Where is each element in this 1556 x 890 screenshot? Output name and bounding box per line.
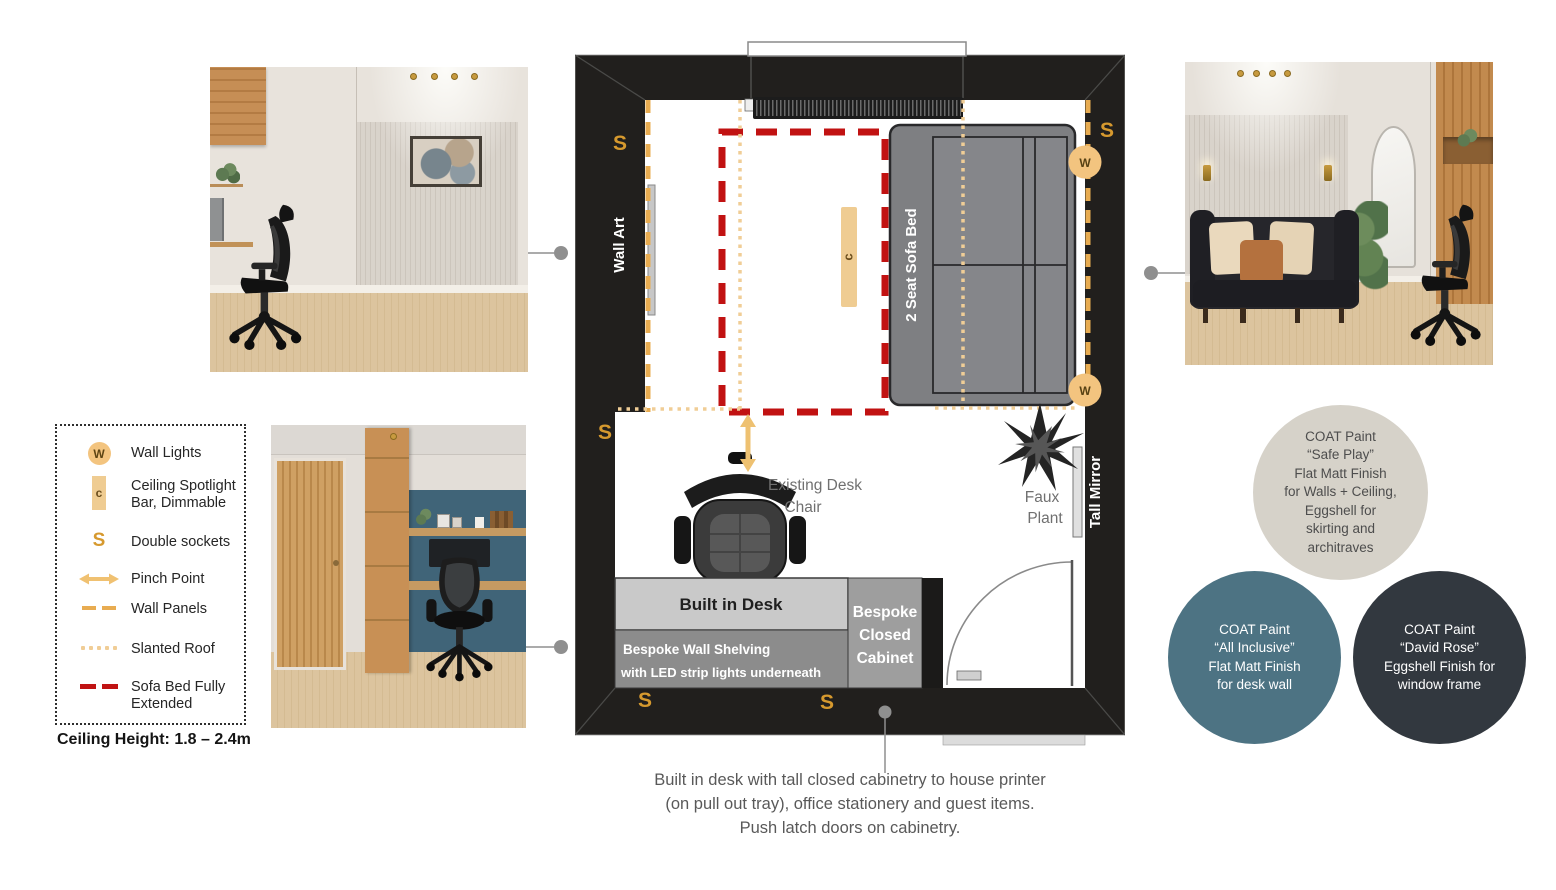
caption: Built in desk with tall closed cabinetry… <box>575 768 1125 840</box>
legend-label: Extended <box>131 696 225 713</box>
cushion-icon <box>1240 240 1282 285</box>
render-sofa-wall-view <box>1185 62 1493 365</box>
socket-icon: S <box>638 689 652 712</box>
swatch-text: “All Inclusive” <box>1214 639 1294 658</box>
office-chair-icon <box>216 201 315 350</box>
svg-text:W: W <box>1079 156 1091 170</box>
wall-panel-dash-icon <box>77 606 121 610</box>
swatch-text: “David Rose” <box>1400 639 1479 658</box>
render-desk-wall-view <box>210 67 528 372</box>
design-board: W Wall Lights c Ceiling Spotlight Bar, D… <box>0 0 1556 890</box>
wood-column-icon <box>365 428 408 673</box>
swatch-text: Flat Matt Finish <box>1294 465 1386 484</box>
socket-icon: S <box>820 691 834 714</box>
swatch-text: COAT Paint <box>1404 621 1475 640</box>
shelf-plant-icon <box>215 160 240 184</box>
swatch-text: for Walls + Ceiling, <box>1284 483 1396 502</box>
mug-icon <box>475 517 484 528</box>
paint-swatch-all-inclusive: COAT Paint “All Inclusive” Flat Matt Fin… <box>1168 571 1341 744</box>
office-chair-icon <box>1401 201 1490 346</box>
pinch-point-arrow-icon <box>79 572 119 586</box>
render-desk-nook-view <box>271 425 526 728</box>
shelf-plant-icon <box>1453 129 1481 148</box>
legend-label: Slanted Roof <box>131 641 215 658</box>
wall-stub <box>922 578 943 688</box>
slanted-roof-dots-icon <box>77 646 121 650</box>
sofa-bed-icon: 2 Seat Sofa Bed <box>890 125 1075 405</box>
wall-art-frame-icon <box>648 185 655 315</box>
tall-mirror-icon <box>1073 447 1082 537</box>
swatch-text: COAT Paint <box>1305 428 1376 447</box>
wall-corner-line <box>356 67 357 287</box>
sofa-icon <box>1190 210 1359 322</box>
swatch-text: skirting and <box>1306 520 1375 539</box>
slatted-door-icon <box>277 461 344 667</box>
svg-text:W: W <box>1079 384 1091 398</box>
caption-line: (on pull out tray), office stationery an… <box>575 792 1125 816</box>
caption-line: Push latch doors on cabinetry. <box>575 816 1125 840</box>
photo-frame-icon <box>452 517 462 528</box>
swatch-text: “Safe Play” <box>1307 446 1374 465</box>
ceiling-height-note: Ceiling Height: 1.8 – 2.4m <box>57 731 251 749</box>
photo-frame-icon <box>437 514 450 528</box>
legend-label: Wall Panels <box>131 601 207 618</box>
socket-icon: S <box>93 530 106 552</box>
socket-icon: S <box>613 132 627 155</box>
swatch-text: COAT Paint <box>1219 621 1290 640</box>
swatch-text: Flat Matt Finish <box>1208 658 1300 677</box>
books-icon <box>490 511 513 528</box>
paint-swatch-david-rose: COAT Paint “David Rose” Eggshell Finish … <box>1353 571 1526 744</box>
svg-text:Bespoke: Bespoke <box>853 604 918 621</box>
wall-light-icon: W <box>1069 374 1102 407</box>
svg-text:c: c <box>840 253 855 260</box>
sofa-bed-dash-icon <box>77 684 121 689</box>
leader-dot <box>879 706 892 719</box>
wall-art-label: Wall Art <box>611 217 628 273</box>
legend-label: Pinch Point <box>131 571 204 588</box>
door-frame <box>274 458 347 670</box>
shelf-plant-icon <box>414 507 432 528</box>
swatch-text: Eggshell Finish for <box>1384 658 1495 677</box>
faux-plant-label: Plant <box>1027 510 1063 527</box>
swatch-text: architraves <box>1307 539 1373 558</box>
office-chair-icon <box>411 555 508 682</box>
legend-label: Wall Lights <box>131 445 201 462</box>
door-handle-icon <box>333 560 339 566</box>
paint-swatch-safe-play: COAT Paint “Safe Play” Flat Matt Finish … <box>1253 405 1428 580</box>
sofa-bed-label: 2 Seat Sofa Bed <box>903 208 920 321</box>
swatch-text: for desk wall <box>1217 676 1292 695</box>
desk-chair-label: Chair <box>784 499 821 516</box>
shelving-label: with LED strip lights underneath <box>620 665 821 680</box>
ceiling-spotlight-bar-icon <box>1237 70 1289 82</box>
swatch-text: Eggshell for <box>1305 502 1376 521</box>
legend: W Wall Lights c Ceiling Spotlight Bar, D… <box>55 424 246 725</box>
shelving-label: Bespoke Wall Shelving <box>623 642 770 657</box>
legend-label: Double sockets <box>131 534 230 551</box>
socket-icon: S <box>598 421 612 444</box>
column-light-icon <box>390 433 397 440</box>
tall-mirror-label: Tall Mirror <box>1087 456 1104 528</box>
legend-label: Bar, Dimmable <box>131 495 236 512</box>
wall-shelf-icon <box>409 528 526 536</box>
desk-chair-label: Existing Desk <box>768 477 862 494</box>
wall-light-icon: W <box>88 442 111 465</box>
built-in-desk-label: Built in Desk <box>680 595 784 614</box>
socket-icon: S <box>1100 119 1114 142</box>
floor-plan: 2 Seat Sofa Bed c <box>575 40 1125 775</box>
wall-sconce-icon <box>1203 165 1211 181</box>
wall-light-icon: W <box>1069 146 1102 179</box>
legend-label: Sofa Bed Fully <box>131 679 225 696</box>
svg-text:Cabinet: Cabinet <box>857 650 914 667</box>
faux-plant-label: Faux <box>1025 489 1060 506</box>
framed-art-icon <box>410 136 482 188</box>
ceiling-spotlight-icon: c <box>92 476 106 510</box>
wood-panel-icon <box>210 67 266 145</box>
legend-label: Ceiling Spotlight <box>131 478 236 495</box>
ceiling-spotlight-bar-icon <box>410 73 480 85</box>
wall-sconce-icon <box>1324 165 1332 181</box>
swatch-text: window frame <box>1398 676 1481 695</box>
window-icon <box>748 42 966 56</box>
caption-line: Built in desk with tall closed cabinetry… <box>575 768 1125 792</box>
svg-text:Closed: Closed <box>859 627 911 644</box>
cabinet-shelf-recess <box>1443 137 1493 164</box>
wall-shelf-icon <box>210 184 243 187</box>
